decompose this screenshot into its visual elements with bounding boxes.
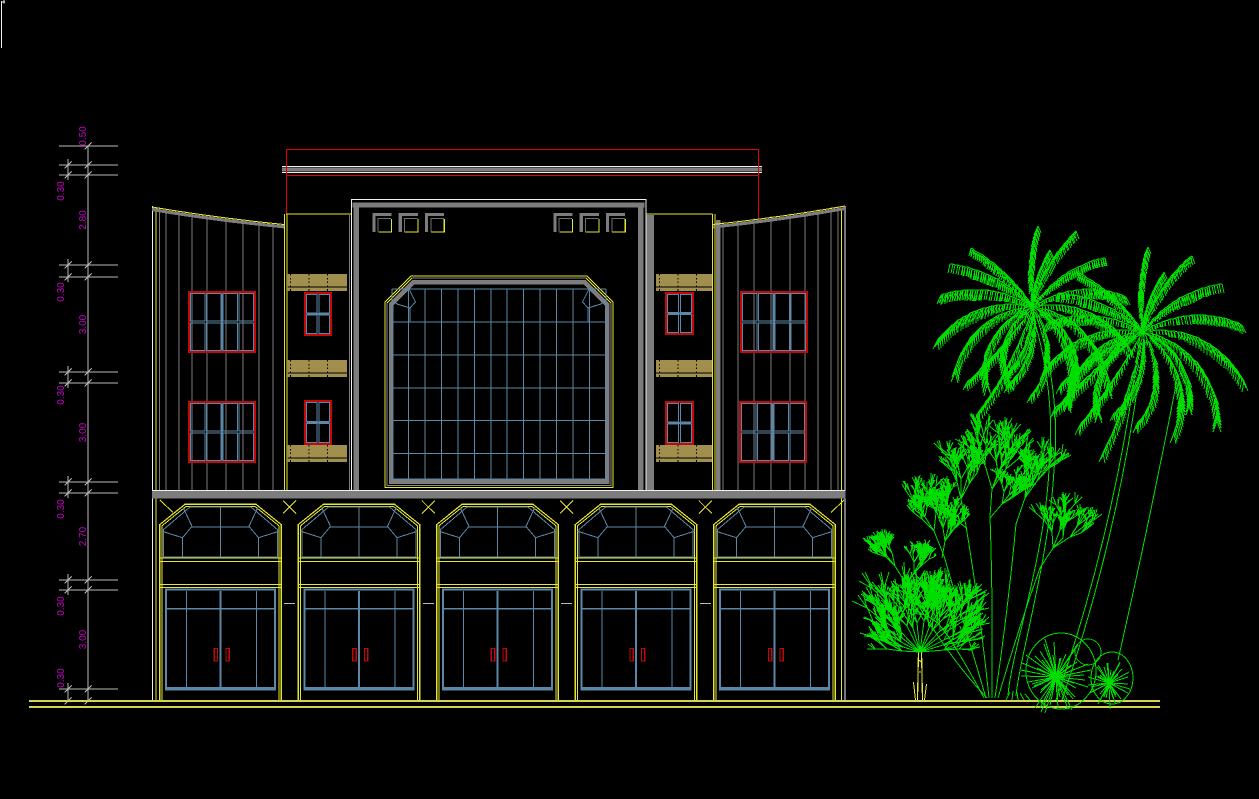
svg-text:0.30: 0.30	[56, 181, 67, 201]
svg-text:2.80: 2.80	[78, 210, 89, 230]
svg-text:3.00: 3.00	[78, 629, 89, 649]
svg-text:0.30: 0.30	[56, 668, 67, 688]
svg-text:0.50: 0.50	[78, 126, 89, 146]
svg-text:3.00: 3.00	[78, 314, 89, 334]
svg-text:0.30: 0.30	[56, 385, 67, 405]
svg-text:2.70: 2.70	[78, 526, 89, 546]
svg-text:0.30: 0.30	[56, 499, 67, 519]
svg-text:0.30: 0.30	[56, 282, 67, 302]
svg-text:3.00: 3.00	[78, 422, 89, 442]
svg-text:0.30: 0.30	[56, 596, 67, 616]
